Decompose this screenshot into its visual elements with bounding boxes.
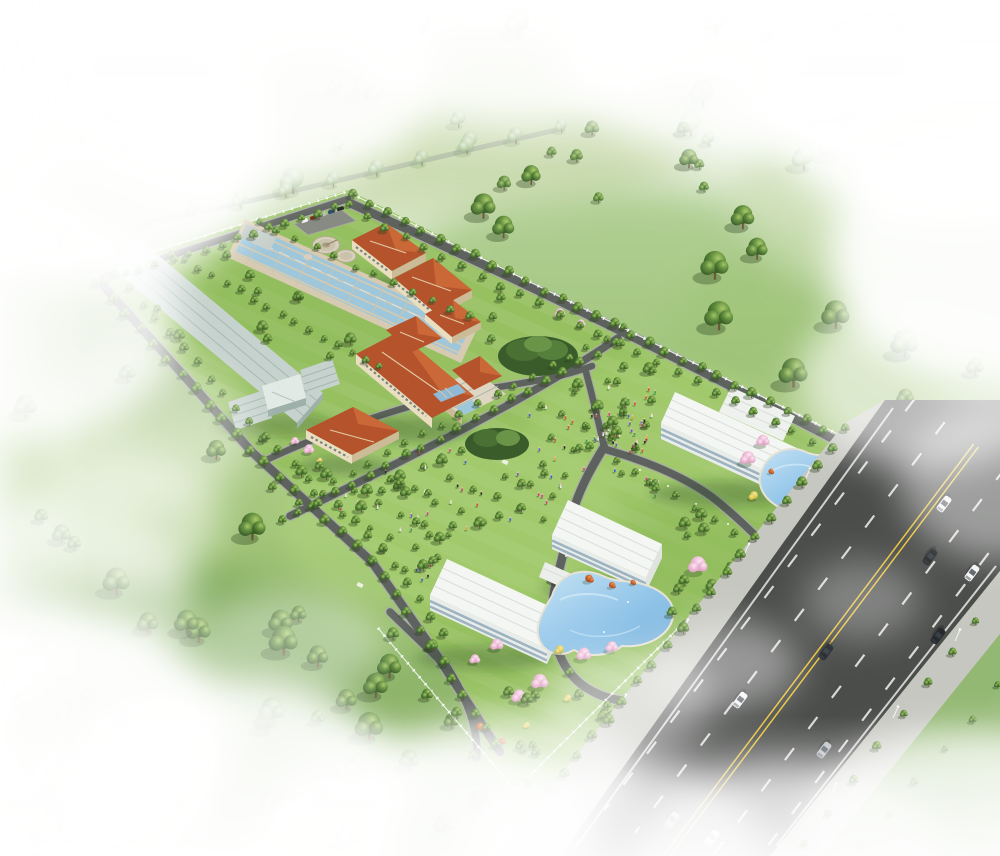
fog-vignette <box>0 0 1000 856</box>
scene-canvas: Aerial 3D rendering of a landscaped wate… <box>0 0 1000 856</box>
fog-overlay <box>0 0 1000 856</box>
aerial-rendering: Aerial 3D rendering of a landscaped wate… <box>0 0 1000 856</box>
